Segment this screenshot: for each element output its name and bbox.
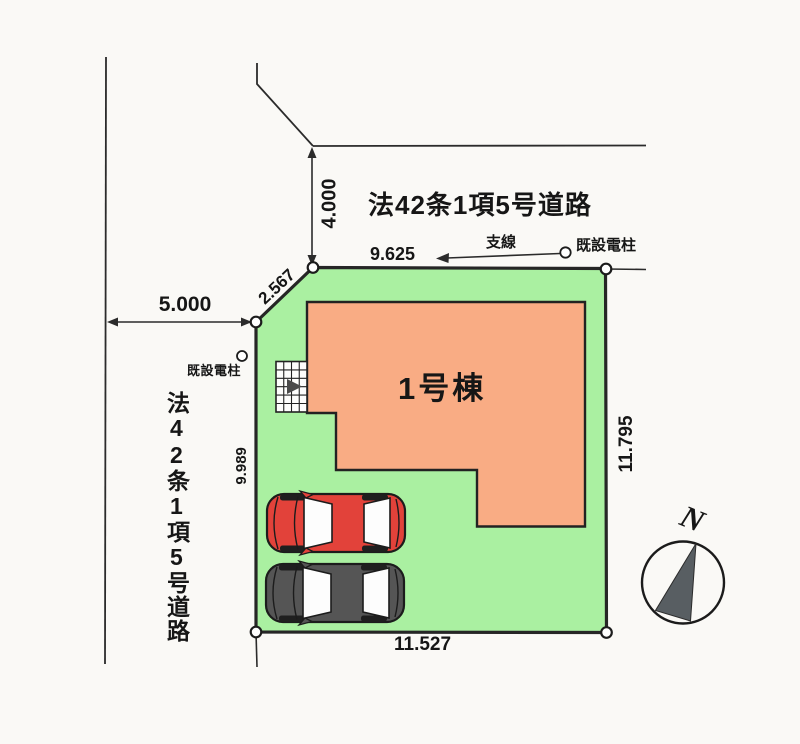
- road-edge-top: [313, 146, 646, 147]
- road-label-left: 法42条1項5号道路: [164, 391, 187, 643]
- dimension-road-width-left: [107, 318, 252, 327]
- dimension-road-width-top: [308, 147, 317, 266]
- dimension-label-road-width-left: 5.000: [150, 294, 220, 316]
- red-car: [267, 491, 405, 555]
- dark-car: [266, 561, 404, 625]
- guy-wire-arrow: [436, 253, 560, 263]
- road-edge-left: [105, 57, 106, 664]
- dimension-label-road-width-top: 4.000: [320, 164, 341, 244]
- dimension-label-edge-left: 9.989: [234, 431, 250, 501]
- utility-pole-icon-right: [560, 247, 570, 257]
- road-label-top: 法42条1項5号道路: [368, 192, 592, 219]
- entrance-porch-hatch: [276, 362, 307, 413]
- compass: [642, 542, 724, 624]
- building-label: 1号棟: [398, 373, 486, 406]
- utility-pole-label-left: 既設電柱: [187, 364, 241, 378]
- compass-needle-icon: [656, 544, 697, 622]
- utility-pole-icon-left: [237, 351, 247, 361]
- dimension-label-edge-right: 11.795: [617, 404, 637, 484]
- dimension-label-edge-top: 9.625: [370, 245, 415, 264]
- road-edge-corner: [257, 63, 313, 146]
- utility-pole-label-right: 既設電柱: [576, 238, 636, 254]
- dimension-label-edge-bottom: 11.527: [394, 635, 451, 655]
- site-plan: 法42条1項5号道路 法42条1項5号道路 1号棟 4.000 5.000 2.…: [0, 0, 800, 744]
- guy-wire-label: 支線: [486, 235, 516, 251]
